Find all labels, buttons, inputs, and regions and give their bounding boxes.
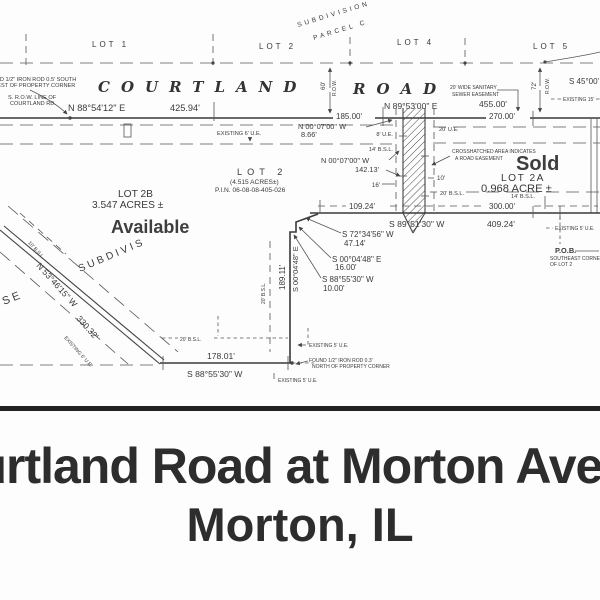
status-sold: Sold [516, 153, 559, 175]
label-bearing-n8854: N 88°54'12" E [68, 103, 125, 113]
label-lot2-name: LOT 2 [237, 167, 287, 177]
banner-title-line2: Morton, IL [186, 497, 413, 552]
lot-2: LOT 2 (4.515 ACRES±) P.I.N. 06-08-08-405… [215, 167, 287, 194]
label-14-bsl-left: 14' B.S.L. [369, 147, 394, 153]
label-lot2b-acres: 3.547 ACRES ± [92, 200, 164, 211]
label-found-rod-nw-2: WEST OF PROPERTY CORNER [0, 83, 75, 89]
lot-2b: LOT 2B 3.547 ACRES ± Available [92, 189, 189, 237]
label-diag-bearing: N 53°46'15" W [35, 261, 80, 310]
label-westline-bearing: S 00°04'48" E [291, 246, 300, 292]
label-step2-dist: 16.00' [335, 263, 357, 272]
label-dist-27000: 270.00' [489, 112, 515, 121]
label-lot2b-name: LOT 2B [118, 189, 153, 200]
banner-title-line1: Courtland Road at Morton Avenue [0, 437, 600, 495]
label-sewer-easement-1: 20' WIDE SANITARY [450, 85, 498, 91]
label-existing-5-ue-b: EXISTING 5' U.E. [278, 378, 318, 384]
label-bearing-s8855: S 88°55'30" W [187, 369, 243, 379]
label-dist-17801: 178.01' [207, 351, 235, 361]
label-diag-existing-6-ue: EXISTING 6' U.E. [63, 335, 94, 368]
label-pob: P.O.B. [555, 246, 576, 255]
label-row72-text: R.O.W. [545, 78, 551, 94]
label-row72-width: 72' [531, 82, 538, 90]
label-lot2-pin: P.I.N. 06-08-08-405-026 [215, 187, 286, 194]
label-14-bsl-right: 14' B.S.L. [511, 194, 536, 200]
label-s-row-line-2: COURTLAND RD. [10, 101, 56, 107]
label-lot-5: LOT 5 [533, 42, 570, 51]
label-20-ue: 20' U.E. [439, 127, 459, 133]
label-bearing-s8951: S 89°51'30" W [389, 219, 445, 229]
status-available: Available [111, 217, 189, 237]
label-sewer-easement-2: SEWER EASEMENT [452, 92, 499, 98]
label-existing-6-ue: EXISTING 6' U.E. [217, 131, 262, 137]
label-easement-bearing: N 00°07'00" W [321, 156, 369, 165]
label-easement-dist: 142.13' [355, 165, 380, 174]
label-diag-dist: 330.32' [75, 314, 101, 342]
divider-rule [0, 406, 600, 411]
label-20-bsl-right: 20' B.S.L. [440, 191, 465, 197]
label-16ft: 16' [372, 182, 380, 189]
label-road: ROAD [352, 80, 447, 98]
label-found-rod-s-2: NORTH OF PROPERTY CORNER [312, 364, 390, 370]
label-10ft: 10' [437, 175, 445, 182]
label-lot-4: LOT 4 [397, 38, 434, 47]
label-dist-40924: 409.24' [487, 219, 515, 229]
label-existing-5-ue-east: EXISTING 5' U.E. [555, 226, 595, 232]
label-step1-bearing: S 72°34'56" W [342, 230, 394, 239]
label-s45-bearing: S 45°00' [569, 77, 600, 86]
label-dist-18911: 189.11' [278, 264, 287, 290]
label-jog-dist: 8.66' [301, 130, 317, 139]
label-existing-5-ue-a: EXISTING 5' U.E. [309, 343, 349, 349]
label-parcel-c: PARCEL C [313, 19, 369, 42]
north-lot-line: LOT 1 LOT 2 LOT 4 LOT 5 SUBDIVISION PARC… [0, 0, 600, 86]
label-step1-dist: 47.14' [344, 239, 366, 248]
label-diag-word-subdivis: SUBDIVIS [77, 237, 147, 275]
label-step3-bearing: S 88°55'30" W [322, 275, 374, 284]
label-dist-10924: 109.24' [349, 202, 375, 211]
label-diag-10-bsl: 10' B.S.L. [27, 240, 46, 260]
label-courtland: COURTLAND [98, 78, 307, 96]
label-diag-word-se: SE [1, 289, 25, 308]
label-20-bsl-bottom: 20' B.S.L. [180, 337, 202, 343]
label-crosshatch-note-2: A ROAD EASEMENT [455, 156, 503, 162]
stair-step-calls: S 72°34'56" W 47.14' S 00°04'48" E 16.00… [261, 214, 394, 363]
label-20-bsl-vert: 20' B.S.L. [261, 282, 267, 304]
scanned-plat-page: LOT 1 LOT 2 LOT 4 LOT 5 SUBDIVISION PARC… [0, 0, 600, 600]
label-row60-text: R.O.W. [332, 80, 338, 96]
monument-symbol [124, 124, 131, 137]
label-dist-45500: 455.00' [479, 99, 507, 109]
label-existing-15: EXISTING 15' [563, 97, 594, 103]
plat-drawing: LOT 1 LOT 2 LOT 4 LOT 5 SUBDIVISION PARC… [0, 0, 600, 410]
label-lot-2: LOT 2 [259, 42, 296, 51]
label-dist-18500: 185.00' [336, 112, 362, 121]
label-dist-30000: 300.00' [489, 202, 515, 211]
label-dist-42594: 425.94' [170, 103, 200, 113]
label-pob-lot: OF LOT 2 [550, 262, 572, 268]
lot-2a: Sold LOT 2A 0.968 ACRE ± 14' B.S.L. [481, 118, 597, 213]
label-row60-width: 60' [320, 82, 327, 90]
label-8-ue: 8' U.E. [376, 132, 393, 138]
label-lot-1: LOT 1 [92, 40, 129, 49]
south-boundary-lot2b: 178.01' S 88°55'30" W 20' B.S.L. EXISTIN… [0, 316, 390, 384]
label-lot2-acres: (4.515 ACRES±) [230, 179, 279, 186]
label-step3-dist: 10.00' [323, 284, 345, 293]
